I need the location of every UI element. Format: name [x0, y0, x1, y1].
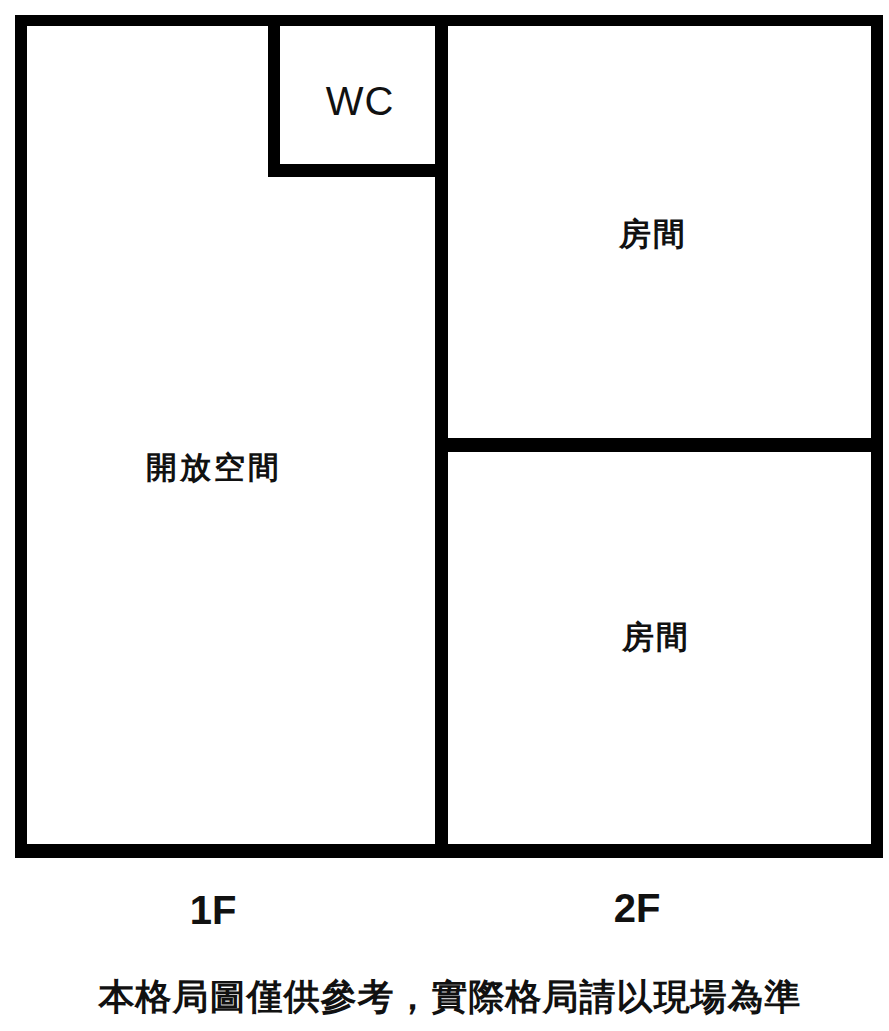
- wall-2f-room-divider: [435, 438, 883, 452]
- floor-label-2f: 2F: [614, 888, 661, 928]
- wall-exterior-left: [15, 15, 27, 858]
- wall-exterior-top: [15, 15, 883, 26]
- room-label-wc: WC: [326, 81, 395, 121]
- wall-exterior-bottom: [15, 844, 883, 858]
- wall-center-divider: [435, 15, 448, 858]
- floor-label-1f: 1F: [190, 890, 237, 930]
- room-label-open-space: 開放空間: [146, 452, 282, 483]
- disclaimer-text: 本格局圖僅供參考，實際格局請以現場為準: [99, 979, 802, 1015]
- room-label-2f-bottom: 房間: [622, 621, 690, 653]
- floor-plan: 開放空間 WC 房間 房間 1F 2F 本格局圖僅供參考，實際格局請以現場為準: [0, 0, 889, 1031]
- wall-exterior-right: [871, 15, 883, 858]
- room-label-2f-top: 房間: [619, 218, 687, 250]
